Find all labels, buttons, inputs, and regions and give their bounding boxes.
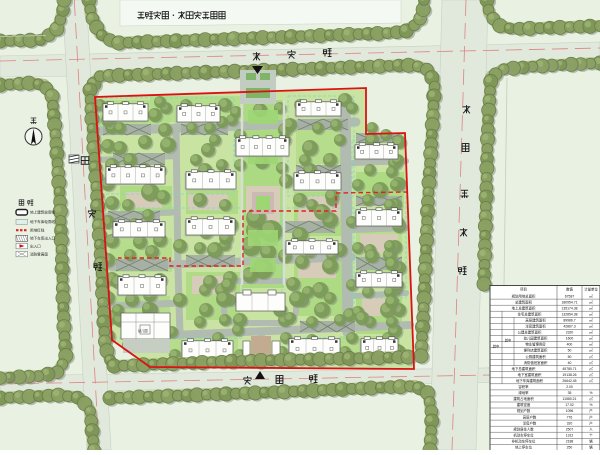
svg-text:幼儿园: 幼儿园 bbox=[138, 328, 148, 333]
svg-text:320: 320 bbox=[567, 421, 573, 425]
svg-text:17.02: 17.02 bbox=[565, 403, 574, 407]
svg-text:幼儿园建筑面积: 幼儿园建筑面积 bbox=[524, 336, 548, 341]
svg-text:数值: 数值 bbox=[566, 287, 573, 292]
svg-text:135174.38: 135174.38 bbox=[561, 306, 577, 310]
svg-text:11580.21: 11580.21 bbox=[563, 397, 577, 401]
svg-text:180954.71: 180954.71 bbox=[561, 300, 577, 304]
svg-text:2.00: 2.00 bbox=[566, 385, 573, 389]
svg-text:地下车库轮廓线: 地下车库轮廓线 bbox=[30, 219, 56, 224]
svg-text:公建总建筑面积: 公建总建筑面积 bbox=[518, 330, 542, 335]
svg-text:消防登高面: 消防登高面 bbox=[30, 251, 48, 256]
svg-text:物业管理用房: 物业管理用房 bbox=[525, 342, 546, 347]
svg-text:26642.45: 26642.45 bbox=[562, 379, 576, 383]
svg-text:132854.38: 132854.38 bbox=[561, 312, 577, 316]
svg-text:洋房户数: 洋房户数 bbox=[523, 420, 537, 425]
svg-text:项目: 项目 bbox=[520, 288, 527, 292]
svg-text:户: 户 bbox=[589, 408, 592, 413]
svg-text:1600: 1600 bbox=[566, 337, 574, 341]
svg-text:户: 户 bbox=[589, 420, 592, 425]
svg-text:地下车库建筑面积: 地下车库建筑面积 bbox=[516, 378, 544, 383]
svg-text:其中: 其中 bbox=[505, 337, 512, 342]
svg-text:45780.71: 45780.71 bbox=[562, 367, 576, 371]
svg-text:便利店建筑面积: 便利店建筑面积 bbox=[524, 348, 548, 353]
svg-text:400: 400 bbox=[567, 343, 573, 347]
svg-text:2507: 2507 bbox=[566, 427, 574, 431]
svg-text:高层建筑面积: 高层建筑面积 bbox=[525, 318, 546, 323]
svg-text:建筑密度: 建筑密度 bbox=[517, 402, 531, 407]
svg-text:50: 50 bbox=[568, 355, 572, 359]
svg-text:%: % bbox=[589, 391, 592, 395]
svg-text:776: 776 bbox=[567, 415, 573, 419]
svg-text:出入口: 出入口 bbox=[30, 243, 41, 248]
svg-text:建筑占地面积: 建筑占地面积 bbox=[513, 396, 534, 401]
svg-text:计量单位: 计量单位 bbox=[584, 287, 598, 292]
svg-text:地上总建筑面积: 地上总建筑面积 bbox=[512, 305, 536, 310]
svg-text:地上建筑轮廓线: 地上建筑轮廓线 bbox=[30, 210, 56, 215]
svg-text:67587: 67587 bbox=[565, 294, 575, 298]
svg-text:容积率: 容积率 bbox=[518, 384, 529, 389]
svg-text:40: 40 bbox=[568, 361, 572, 365]
svg-text:规划用地总面积: 规划用地总面积 bbox=[512, 293, 536, 298]
svg-text:89986.7: 89986.7 bbox=[563, 319, 575, 323]
svg-text:规划居住人数: 规划居住人数 bbox=[513, 426, 534, 431]
svg-text:用地红线: 用地红线 bbox=[30, 228, 45, 233]
svg-text:机动车停车位: 机动车停车位 bbox=[513, 432, 534, 437]
svg-text:地下车库出入口: 地下车库出入口 bbox=[30, 236, 56, 241]
svg-text:总建筑面积: 总建筑面积 bbox=[515, 299, 533, 304]
svg-text:%: % bbox=[589, 403, 592, 407]
svg-text:其中: 其中 bbox=[493, 344, 500, 349]
svg-text:公厕建筑面积: 公厕建筑面积 bbox=[525, 354, 546, 359]
svg-text:规划户数: 规划户数 bbox=[517, 408, 531, 413]
svg-text:19138.26: 19138.26 bbox=[562, 373, 576, 377]
svg-text:1096: 1096 bbox=[566, 409, 574, 413]
svg-text:2320: 2320 bbox=[566, 331, 574, 335]
svg-text:35: 35 bbox=[568, 391, 572, 395]
svg-text:2188: 2188 bbox=[566, 440, 574, 444]
svg-text:绿地率: 绿地率 bbox=[518, 390, 529, 395]
svg-text:42867.3: 42867.3 bbox=[563, 325, 575, 329]
svg-text:洋房建筑面积: 洋房建筑面积 bbox=[525, 324, 546, 329]
svg-text:高层户数: 高层户数 bbox=[523, 414, 537, 419]
svg-text:户: 户 bbox=[589, 414, 592, 419]
svg-text:地下总建筑面积: 地下总建筑面积 bbox=[512, 366, 536, 371]
svg-text:1312: 1312 bbox=[566, 433, 574, 437]
svg-text:地下室建筑面积: 地下室建筑面积 bbox=[518, 372, 542, 377]
svg-text:50: 50 bbox=[568, 349, 572, 353]
svg-text:住宅总建筑面积: 住宅总建筑面积 bbox=[518, 311, 542, 316]
svg-text:地上停车位: 地上停车位 bbox=[515, 445, 533, 450]
svg-text:250: 250 bbox=[567, 446, 573, 450]
svg-text:非机动车停车位: 非机动车停车位 bbox=[512, 439, 536, 444]
svg-text:消防值班室面积: 消防值班室面积 bbox=[524, 360, 548, 365]
